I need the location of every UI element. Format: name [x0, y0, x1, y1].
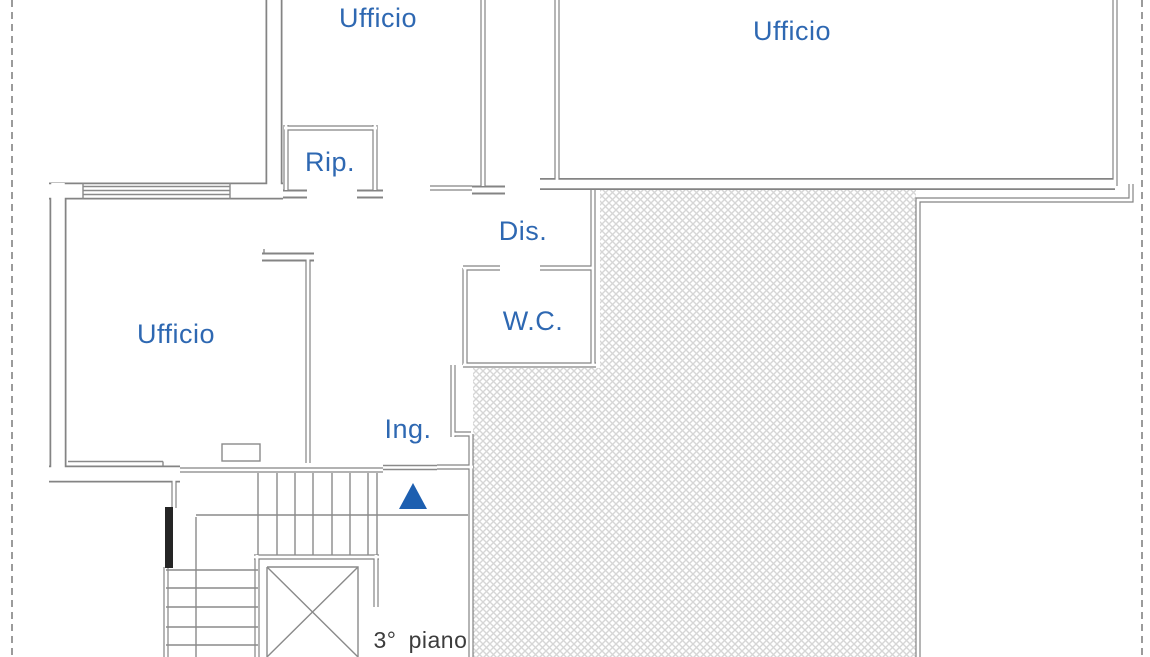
room-label-wc: W.C. [503, 306, 564, 336]
stair-door [165, 507, 173, 568]
entrance-door-threshold [383, 466, 437, 470]
room-label-entrance: Ing. [384, 414, 431, 444]
interior-step-lines [68, 249, 264, 466]
floor-indicator: 3° piano [374, 627, 468, 653]
exterior-walls-core [49, 0, 283, 479]
floor-number: 3° [374, 627, 397, 653]
room-label-storage: Rip. [305, 147, 355, 177]
exterior-walls [49, 0, 283, 479]
entrance-arrow-icon [399, 483, 427, 509]
elevator-shaft [267, 567, 358, 657]
room-label-office-right: Ufficio [753, 16, 831, 46]
door-jambs [262, 190, 505, 257]
room-label-office-top: Ufficio [339, 3, 417, 33]
room-label-office-left: Ufficio [137, 319, 215, 349]
floor-plan-page: Ufficio Ufficio Ufficio Rip. Dis. W.C. I… [0, 0, 1150, 657]
door-jambs-core [262, 190, 505, 257]
floor-word: piano [409, 627, 468, 653]
room-label-hallway: Dis. [499, 216, 548, 246]
floor-plan-svg: Ufficio Ufficio Ufficio Rip. Dis. W.C. I… [0, 0, 1150, 657]
hatched-terrace-area [473, 190, 916, 657]
